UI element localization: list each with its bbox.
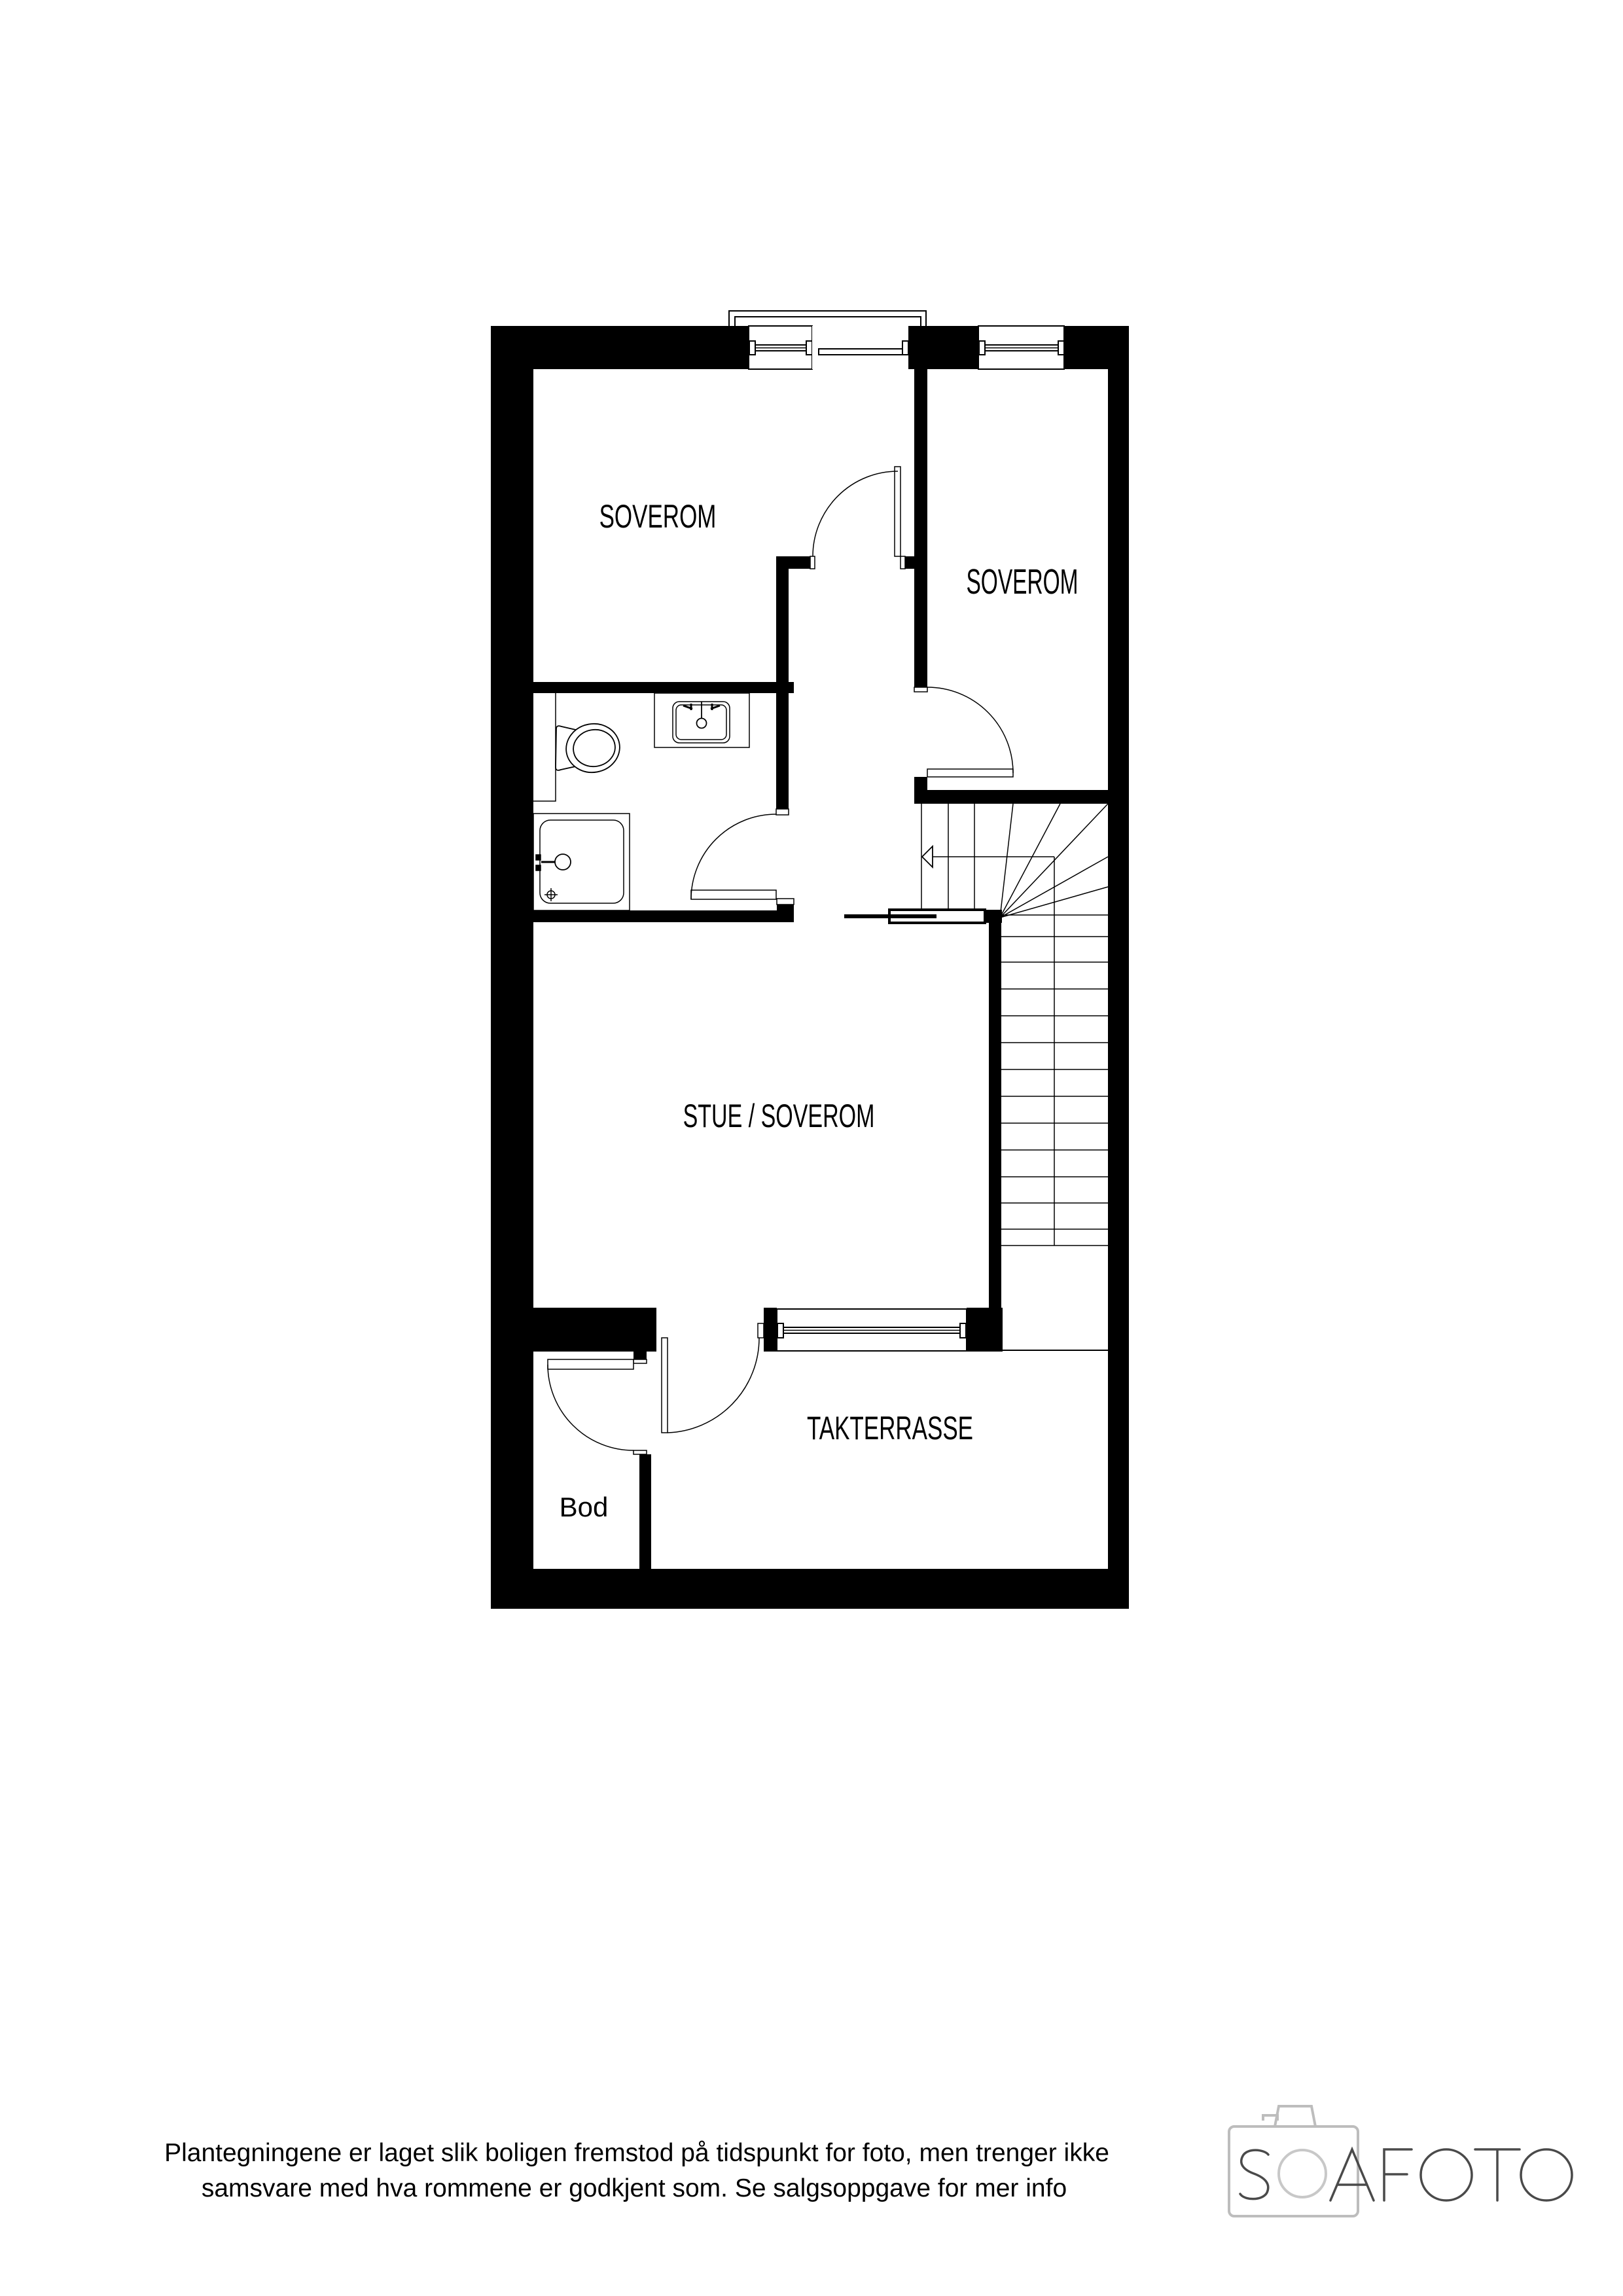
svg-text:samsvare med hva rommene er go: samsvare med hva rommene er godkjent som…	[202, 2174, 1067, 2202]
svg-text:SOVEROM: SOVEROM	[599, 499, 717, 535]
svg-text:TAKTERRASSE: TAKTERRASSE	[807, 1410, 973, 1447]
svg-text:Bod: Bod	[560, 1492, 609, 1522]
svg-text:SOVEROM: SOVEROM	[966, 562, 1078, 601]
svg-text:STUE / SOVEROM: STUE / SOVEROM	[683, 1098, 875, 1135]
svg-text:Plantegningene er laget slik b: Plantegningene er laget slik boligen fre…	[164, 2139, 1109, 2167]
